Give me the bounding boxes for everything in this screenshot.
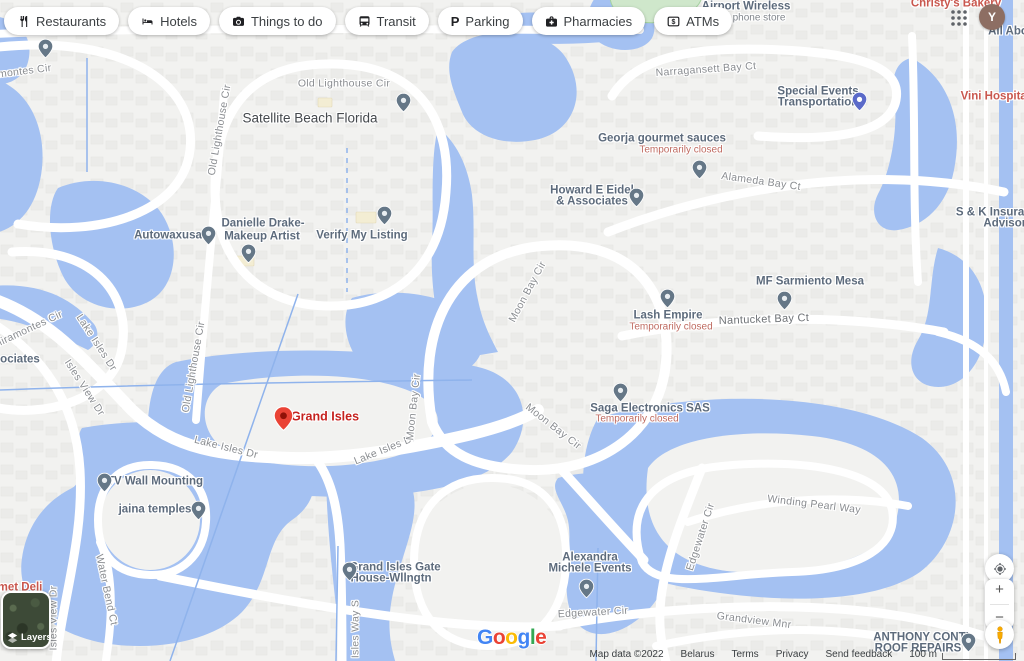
google-maps-app: Miramontes CirOld Lighthouse CirSatellit… (0, 0, 1024, 661)
chip-atms[interactable]: $ ATMs (654, 7, 732, 35)
poi-pin-special-events[interactable] (849, 91, 870, 117)
google-logo-letter: g (518, 626, 530, 650)
map-data-copyright: Map data ©2022 (589, 649, 663, 660)
poi-pin-lash-empire[interactable] (657, 288, 678, 314)
privacy-link[interactable]: Privacy (776, 649, 809, 660)
svg-text:$: $ (672, 19, 676, 26)
chip-label: Hotels (160, 14, 197, 29)
poi-pin-satellite-beach[interactable] (393, 92, 414, 118)
chip-parking[interactable]: P Parking (438, 7, 523, 35)
poi-pin-verify-listing[interactable] (374, 205, 395, 231)
poi-pin-gate[interactable] (339, 561, 360, 587)
poi-pin-alexandra[interactable] (576, 578, 597, 604)
attribution-region-link[interactable]: Belarus (681, 649, 715, 660)
chip-label: Pharmacies (564, 14, 633, 29)
poi-pin-howard[interactable] (626, 187, 647, 213)
poi-pin-autowaxusa[interactable] (198, 225, 219, 251)
google-logo-letter: o (505, 626, 517, 650)
chip-label: Restaurants (36, 14, 106, 29)
chip-restaurants[interactable]: Restaurants (4, 7, 119, 35)
zoom-divider (990, 604, 1009, 605)
map-scale: 100 m (909, 649, 1016, 660)
poi-pin-saga[interactable] (610, 382, 631, 408)
restaurants-icon (17, 15, 30, 28)
chip-label: Things to do (251, 14, 323, 29)
layers-icon (7, 632, 18, 643)
poi-pin-georja[interactable] (689, 159, 710, 185)
atms-icon: $ (667, 15, 680, 28)
transit-icon (358, 15, 371, 28)
things-to-do-icon (232, 15, 245, 28)
terms-link[interactable]: Terms (731, 649, 758, 660)
chip-label: ATMs (686, 14, 719, 29)
poi-pin-top-left[interactable] (35, 38, 56, 64)
scale-label: 100 m (909, 649, 937, 660)
google-logo-letter: o (493, 626, 505, 650)
pegman-icon (994, 626, 1006, 644)
zoom-in-button[interactable]: + (985, 581, 1014, 599)
avatar-letter: Y (988, 10, 996, 24)
google-logo-letter: e (535, 626, 546, 650)
category-chip-bar: Restaurants Hotels Things to do Transit … (4, 7, 732, 35)
pharmacies-icon (545, 15, 558, 28)
account-avatar[interactable]: Y (979, 4, 1005, 30)
my-location-icon (992, 561, 1008, 577)
poi-pin-danielle[interactable] (238, 243, 259, 269)
chip-label: Parking (465, 14, 509, 29)
poi-pin-mf-sarmiento[interactable] (774, 290, 795, 316)
chip-label: Transit (377, 14, 416, 29)
poi-pin-tv-wall[interactable] (94, 472, 115, 498)
hotels-icon (141, 15, 154, 28)
pegman-button[interactable] (985, 620, 1014, 649)
chip-pharmacies[interactable]: Pharmacies (532, 7, 646, 35)
google-logo-letter: G (477, 626, 493, 650)
layers-label: Layers (21, 632, 52, 643)
attribution-bar: Map data ©2022 Belarus Terms Privacy Sen… (589, 649, 1016, 660)
destination-pin-grand-isles[interactable] (270, 405, 297, 437)
scale-bar (942, 653, 1016, 660)
chip-things-to-do[interactable]: Things to do (219, 7, 336, 35)
google-logo: Google (477, 626, 546, 650)
chip-transit[interactable]: Transit (345, 7, 429, 35)
parking-icon: P (451, 14, 460, 29)
google-apps-grid-icon[interactable] (949, 8, 969, 28)
poi-pin-jaina[interactable] (188, 500, 209, 526)
map-pins-layer (0, 0, 1024, 661)
send-feedback-link[interactable]: Send feedback (825, 649, 892, 660)
layers-button[interactable]: Layers (1, 591, 51, 649)
chip-hotels[interactable]: Hotels (128, 7, 210, 35)
